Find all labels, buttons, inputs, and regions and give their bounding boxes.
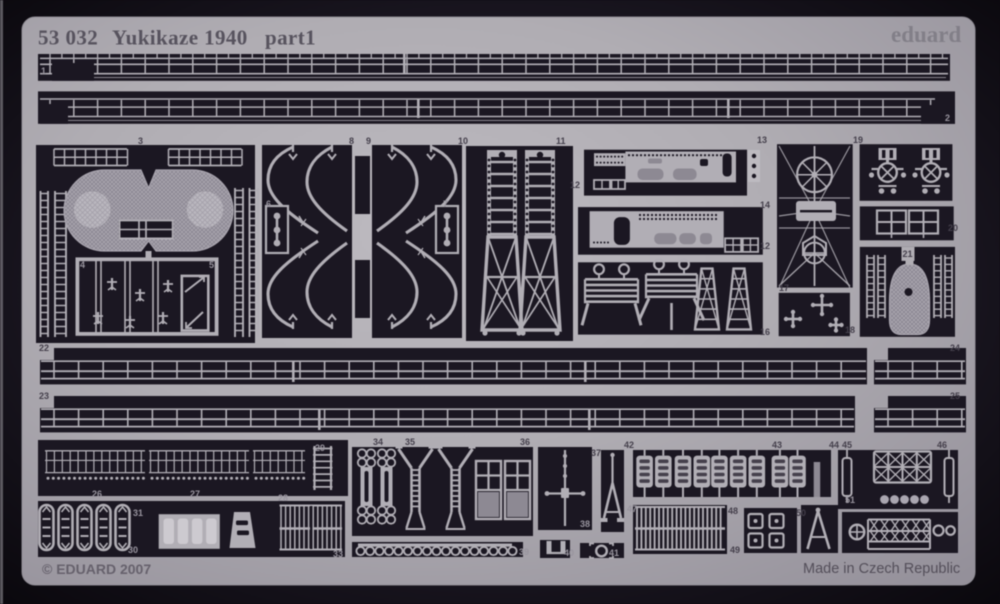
- svg-text:part1: part1: [265, 26, 316, 50]
- svg-text:Made in Czech Republic: Made in Czech Republic: [803, 561, 960, 577]
- svg-text:50: 50: [796, 508, 806, 518]
- svg-text:36: 36: [520, 437, 530, 447]
- svg-text:43: 43: [772, 440, 782, 450]
- svg-text:44: 44: [829, 440, 839, 450]
- svg-text:37: 37: [591, 448, 601, 458]
- svg-text:23: 23: [39, 391, 49, 401]
- svg-text:39: 39: [519, 547, 529, 557]
- svg-text:35: 35: [405, 437, 415, 447]
- svg-text:eduard: eduard: [891, 22, 962, 47]
- svg-text:22: 22: [39, 343, 49, 353]
- svg-text:51: 51: [845, 495, 855, 505]
- svg-text:2: 2: [945, 113, 950, 123]
- svg-text:5: 5: [209, 260, 214, 270]
- svg-text:6: 6: [266, 199, 271, 209]
- svg-text:31: 31: [133, 508, 143, 518]
- svg-text:47: 47: [627, 504, 637, 514]
- svg-text:29: 29: [315, 443, 325, 453]
- svg-text:10: 10: [458, 136, 468, 146]
- svg-text:33: 33: [333, 549, 343, 559]
- svg-text:20: 20: [948, 223, 958, 233]
- svg-text:12: 12: [760, 241, 770, 251]
- svg-text:48: 48: [728, 506, 738, 516]
- svg-text:11: 11: [556, 136, 566, 146]
- svg-text:45: 45: [842, 440, 852, 450]
- svg-text:46: 46: [937, 440, 947, 450]
- svg-text:4: 4: [80, 260, 85, 270]
- svg-text:24: 24: [950, 343, 960, 353]
- svg-text:38: 38: [580, 519, 590, 529]
- svg-text:53 032: 53 032: [38, 26, 98, 50]
- svg-text:42: 42: [624, 440, 634, 450]
- svg-text:8: 8: [349, 136, 354, 146]
- svg-text:1: 1: [41, 66, 46, 76]
- svg-text:26: 26: [92, 489, 102, 499]
- svg-text:28: 28: [278, 493, 288, 503]
- svg-text:16: 16: [760, 327, 770, 337]
- svg-text:40: 40: [564, 548, 574, 558]
- svg-text:© EDUARD 2007: © EDUARD 2007: [42, 561, 151, 577]
- svg-text:49: 49: [730, 545, 740, 555]
- svg-text:17: 17: [779, 283, 789, 293]
- svg-text:12: 12: [570, 180, 580, 190]
- svg-text:7: 7: [443, 199, 448, 209]
- svg-text:34: 34: [373, 437, 383, 447]
- svg-text:13: 13: [757, 135, 767, 145]
- svg-text:21: 21: [903, 249, 913, 259]
- svg-text:9: 9: [366, 136, 371, 146]
- svg-text:3: 3: [138, 136, 143, 146]
- svg-text:30: 30: [128, 545, 138, 555]
- svg-text:19: 19: [853, 135, 863, 145]
- svg-text:41: 41: [609, 548, 619, 558]
- svg-text:Yukikaze 1940: Yukikaze 1940: [112, 26, 248, 50]
- svg-text:14: 14: [760, 200, 770, 210]
- svg-text:27: 27: [190, 489, 200, 499]
- svg-text:25: 25: [950, 391, 960, 401]
- svg-text:18: 18: [845, 325, 855, 335]
